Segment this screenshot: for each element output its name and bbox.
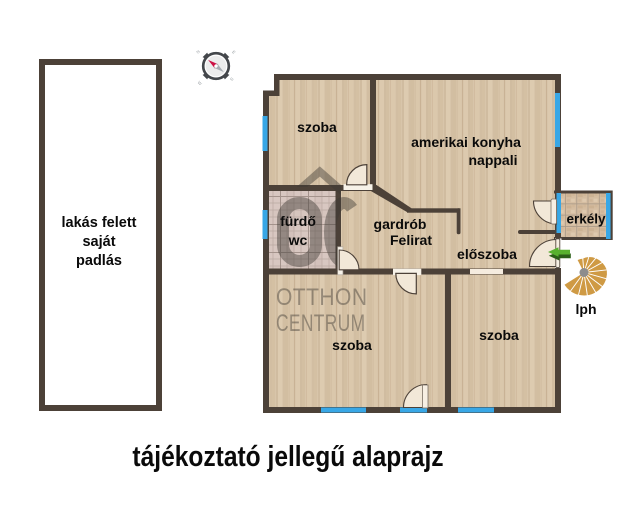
svg-text:saját: saját [82,234,115,250]
svg-text:erkély: erkély [566,212,606,227]
svg-text:tájékoztató jellegű alaprajz: tájékoztató jellegű alaprajz [132,440,443,472]
svg-text:gardrób: gardrób [374,216,427,232]
svg-text:amerikai konyha: amerikai konyha [411,134,521,150]
svg-text:szoba: szoba [479,327,519,343]
svg-text:előszoba: előszoba [457,246,517,262]
svg-text:wc: wc [288,232,308,248]
svg-text:Felirat: Felirat [390,232,432,248]
svg-text:CENTRUM: CENTRUM [276,309,365,337]
svg-text:szoba: szoba [332,337,372,353]
svg-text:OTTHON: OTTHON [276,282,367,310]
svg-text:lakás felett: lakás felett [62,215,137,231]
svg-text:fürdő: fürdő [280,213,316,229]
svg-text:szoba: szoba [297,119,337,135]
svg-text:nappali: nappali [468,152,517,168]
svg-text:lph: lph [576,301,597,317]
svg-text:padlás: padlás [76,253,122,269]
